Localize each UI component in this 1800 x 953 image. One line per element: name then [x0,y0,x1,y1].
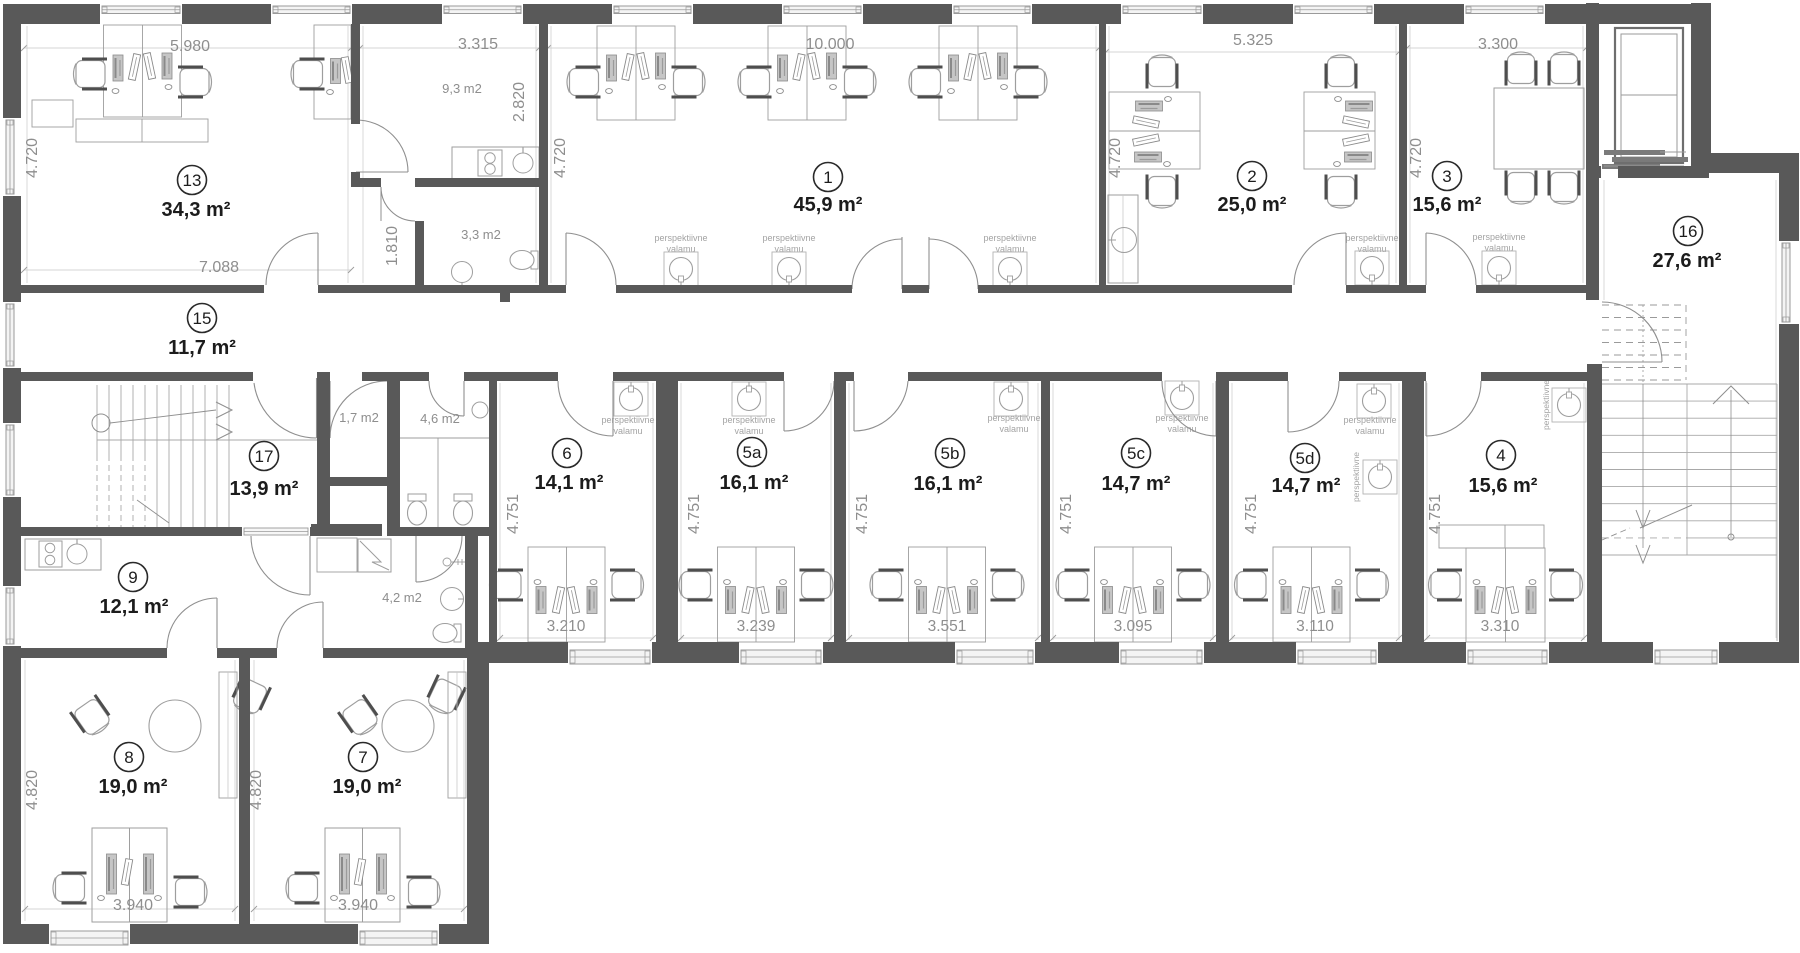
svg-text:25,0 m²: 25,0 m² [1218,194,1287,216]
svg-text:5d: 5d [1296,449,1315,468]
svg-text:1: 1 [823,168,832,187]
svg-text:4.751: 4.751 [505,494,522,534]
svg-text:valamu: valamu [995,244,1024,254]
svg-text:4,6 m2: 4,6 m2 [420,411,460,426]
svg-text:3.239: 3.239 [737,618,776,635]
svg-text:1,7 m2: 1,7 m2 [339,410,379,425]
svg-text:3.940: 3.940 [113,897,153,914]
svg-text:4,2 m2: 4,2 m2 [382,590,422,605]
svg-text:17: 17 [255,447,274,466]
svg-text:5c: 5c [1127,444,1145,463]
svg-text:14,7 m²: 14,7 m² [1272,475,1341,497]
svg-text:5b: 5b [941,444,960,463]
svg-text:valamu: valamu [1357,244,1386,254]
svg-text:4.720: 4.720 [1107,138,1124,178]
svg-text:valamu: valamu [734,426,763,436]
svg-text:4.720: 4.720 [24,138,41,178]
svg-text:valamu: valamu [613,426,642,436]
svg-text:perspektiivne: perspektiivne [1343,415,1396,425]
svg-text:4.820: 4.820 [24,770,41,810]
svg-text:12,1 m²: 12,1 m² [100,596,169,618]
svg-text:7: 7 [358,748,367,767]
svg-text:4.720: 4.720 [1408,138,1425,178]
svg-text:5.980: 5.980 [170,38,210,55]
svg-text:4.751: 4.751 [854,494,871,534]
svg-text:6: 6 [562,444,571,463]
svg-text:27,6 m²: 27,6 m² [1653,250,1722,272]
svg-text:11,7 m²: 11,7 m² [168,337,236,359]
svg-text:perspektiivne: perspektiivne [1155,413,1208,423]
svg-text:perspektiivne: perspektiivne [601,415,654,425]
svg-text:14,7 m²: 14,7 m² [1102,473,1171,495]
svg-text:16,1 m²: 16,1 m² [720,472,789,494]
svg-text:9: 9 [128,568,137,587]
svg-text:14,1 m²: 14,1 m² [535,472,604,494]
svg-text:3.300: 3.300 [1478,36,1518,53]
svg-text:3.210: 3.210 [547,618,586,635]
svg-text:perspektiivne: perspektiivne [722,415,775,425]
svg-text:34,3 m²: 34,3 m² [162,199,231,221]
svg-text:4.751: 4.751 [1058,494,1075,534]
svg-text:4.751: 4.751 [1243,494,1260,534]
svg-text:perspektiivne: perspektiivne [762,233,815,243]
svg-text:3.551: 3.551 [928,618,967,635]
svg-text:3: 3 [1442,167,1451,186]
svg-text:8: 8 [124,748,133,767]
svg-text:3.940: 3.940 [338,897,378,914]
svg-text:4.751: 4.751 [1427,494,1444,534]
svg-text:perspektiivne: perspektiivne [1541,380,1551,430]
svg-text:valamu: valamu [1167,424,1196,434]
svg-text:2.820: 2.820 [511,82,528,122]
svg-text:valamu: valamu [1355,426,1384,436]
svg-text:13: 13 [183,171,202,190]
svg-text:5a: 5a [743,443,762,462]
svg-text:perspektiivne: perspektiivne [1472,232,1525,242]
svg-text:15,6 m²: 15,6 m² [1413,194,1482,216]
svg-text:7.088: 7.088 [199,259,239,276]
svg-text:valamu: valamu [666,244,695,254]
svg-text:3.095: 3.095 [1114,618,1153,635]
svg-text:3.315: 3.315 [458,36,498,53]
svg-text:3.110: 3.110 [1296,618,1334,635]
svg-text:3.310: 3.310 [1481,618,1520,635]
svg-text:13,9 m²: 13,9 m² [230,478,299,500]
svg-text:4: 4 [1496,446,1505,465]
svg-text:valamu: valamu [999,424,1028,434]
svg-text:perspektiivne: perspektiivne [983,233,1036,243]
svg-text:valamu: valamu [774,244,803,254]
svg-text:15,6 m²: 15,6 m² [1469,475,1538,497]
svg-text:valamu: valamu [1484,243,1513,253]
svg-text:19,0 m²: 19,0 m² [99,776,168,798]
svg-text:45,9 m²: 45,9 m² [794,194,863,216]
svg-text:perspektiivne: perspektiivne [987,413,1040,423]
svg-text:2: 2 [1247,167,1256,186]
svg-text:1.810: 1.810 [384,226,401,266]
svg-text:3,3 m2: 3,3 m2 [461,227,501,242]
svg-text:4.720: 4.720 [552,138,569,178]
svg-text:4.820: 4.820 [248,770,265,810]
svg-text:perspektiivne: perspektiivne [654,233,707,243]
svg-text:16,1 m²: 16,1 m² [914,473,983,495]
svg-text:4.751: 4.751 [686,494,703,534]
svg-text:perspektiivne: perspektiivne [1351,452,1361,502]
svg-text:16: 16 [1679,222,1698,241]
svg-text:5.325: 5.325 [1233,32,1273,49]
svg-text:9,3 m2: 9,3 m2 [442,81,482,96]
svg-text:perspektiivne: perspektiivne [1345,233,1398,243]
svg-text:15: 15 [193,309,212,328]
svg-text:10.000: 10.000 [806,36,855,53]
svg-text:19,0 m²: 19,0 m² [333,776,402,798]
